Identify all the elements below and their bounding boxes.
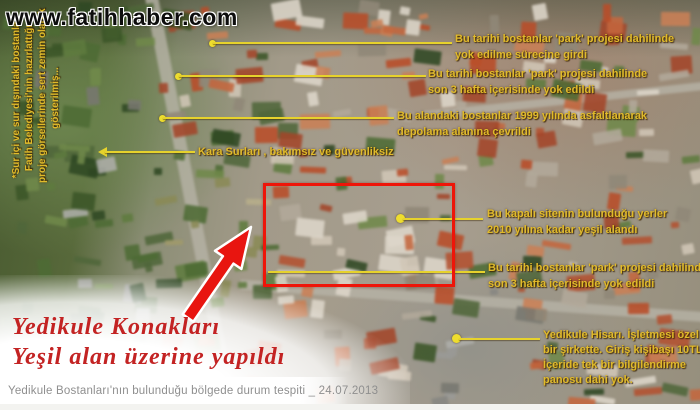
annotation-line: panosu dahi yok. [543,373,700,388]
photo-texture-block [661,12,690,26]
annotation-line: Bu kapalı sitenin bulunduğu yerler [487,206,667,222]
watermark-logo: www.fatihhaber.com [6,4,238,31]
photo-texture-block [643,149,670,162]
photo-texture-block [128,100,142,111]
annotation-line: Bu tarihi bostanlar 'park' projesi dahil… [488,260,700,276]
leader-line-2 [179,75,426,77]
leader-line-3 [163,117,394,119]
photo-texture-block [16,222,27,235]
annotation-yedikule-fortress: Yedikule Hisarı. İşletmesi özel bir şirk… [543,328,700,388]
annotation-line: İçeride tek bir bilgilendirme [543,358,700,373]
photo-texture-block [444,165,467,171]
photo-texture-block [477,138,498,158]
photo-texture-block [529,162,558,177]
photo-texture-block [609,175,627,189]
annotation-kara-surlari: Kara Surları , bakımsız ve güvenliksiz [198,144,394,160]
annotation-park-project-process: Bu tarihi bostanlar 'park' projesi dahil… [455,31,674,63]
photo-texture-block [190,220,199,228]
photo-texture-block [136,37,155,46]
photo-texture-block [628,303,649,314]
annotation-line: Bu tarihi bostanlar 'park' projesi dahil… [455,31,674,47]
photo-texture-block [155,195,178,206]
rotated-note-line: *Sur içi ve sur dışındaki bostanlar [10,13,23,183]
photo-texture-block [179,94,191,108]
leader-line-7 [459,338,540,340]
annotation-line: Bu tarihi bostanlar 'park' projesi dahil… [428,66,647,82]
photo-texture-block [405,19,421,36]
photo-texture-block [690,388,700,401]
photo-texture-block [542,240,572,250]
photo-texture-block [534,308,547,321]
photo-texture-block [419,13,429,20]
photo-texture-block [690,167,700,184]
photo-texture-block [413,48,442,65]
photo-texture-block [159,83,169,93]
annotation-line: 2010 yılına kadar yeşil alandı [487,222,667,238]
photo-texture-block [675,207,691,223]
highlight-rectangle [263,183,455,287]
photo-texture-block [526,245,544,257]
photo-texture-block [386,58,412,69]
photo-texture-block [681,243,695,255]
annotation-line: Bu alandaki bostanlar 1999 yılında asfal… [397,108,647,124]
photo-texture-block [399,6,410,16]
photo-texture-block [233,97,246,112]
rotated-note-line: proje görsellerinde sert zemin olarak [36,13,49,183]
photo-texture-block [659,70,690,82]
photo-texture-block [584,389,604,396]
photo-texture-block [532,3,549,21]
photo-texture-block [657,314,673,325]
photo-texture-block [634,387,662,396]
leader-line-4 [105,151,195,153]
annotation-destroyed-3-weeks-top: Bu tarihi bostanlar 'park' projesi dahil… [428,66,647,98]
photo-texture-block [61,105,92,128]
photo-texture-block [671,222,679,229]
photo-texture-block [682,155,700,164]
photo-texture-block [239,221,248,239]
photo-texture-block [247,50,257,59]
photo-texture-block [240,246,258,258]
photo-texture-block [71,192,96,212]
headline-line1: Yedikule Konakları [12,314,220,341]
photo-texture-block [256,53,268,60]
photo-texture-block [413,343,437,363]
photo-texture-block [96,156,117,174]
photo-texture-block [368,105,389,126]
annotation-asphalt-1999: Bu alandaki bostanlar 1999 yılında asfal… [397,108,647,140]
photo-texture-block [121,213,133,223]
photo-texture-block [207,31,229,40]
annotation-line: son 3 hafta içerisinde yok edildi [428,82,647,98]
annotation-line: son 3 hafta içerisinde yok edildi [488,276,700,292]
photo-texture-block [47,183,55,191]
photo-texture-block [315,66,330,79]
photo-texture-block [172,121,198,138]
rotated-note-line: Fatih Belediyesi'nin hazırlattığı [23,13,36,183]
annotation-destroyed-3-weeks-bottom: Bu tarihi bostanlar 'park' projesi dahil… [488,260,700,292]
photo-texture-block [74,256,102,266]
bottom-strip [0,404,700,410]
photo-texture-block [300,166,326,173]
photo-texture-block [255,127,278,143]
rotated-note-line: gösterilmiş... [49,13,62,183]
annotation-line: Kara Surları , bakımsız ve güvenliksiz [198,144,394,160]
annotation-line: bir şirkette. Giriş kişibaşı 10TL. [543,343,700,358]
photo-texture-block [521,159,533,169]
photo-texture-block [92,68,101,84]
photo-texture-block [442,156,460,164]
annotation-line: depolama alanına çevrildi [397,124,647,140]
photo-texture-block [420,24,431,31]
photo-texture-block [300,114,330,130]
annotation-line: yok edilme sürecine girdi [455,47,674,63]
photo-texture-block [164,111,187,122]
headline-line2: Yeşil alan üzerine yapıldı [12,344,285,371]
annotated-aerial-photo: Yedikule Bostanları'nın bulunduğu bölged… [0,0,700,410]
photo-texture-block [434,286,454,304]
photo-texture-block [95,219,114,228]
photo-texture-block [441,383,459,394]
photo-texture-block [603,4,611,22]
photo-texture-block [315,50,341,58]
photo-texture-block [408,79,427,98]
photo-texture-block [86,86,100,105]
photo-texture-block [452,298,480,318]
photo-texture-block [154,168,162,175]
photo-texture-block [397,168,409,176]
photo-texture-block [91,210,105,221]
photo-texture-block [165,240,183,246]
annotation-line: Yedikule Hisarı. İşletmesi özel [543,328,700,343]
caption-text: Yedikule Bostanları'nın bulunduğu bölged… [8,385,378,397]
annotation-gated-site-green: Bu kapalı sitenin bulunduğu yerler 2010 … [487,206,667,238]
photo-texture-block [307,91,319,106]
rotated-note: *Sur içi ve sur dışındaki bostanlar Fati… [10,13,62,183]
leader-line-1 [213,42,452,44]
photo-texture-block [691,28,700,46]
photo-texture-block [215,177,231,188]
